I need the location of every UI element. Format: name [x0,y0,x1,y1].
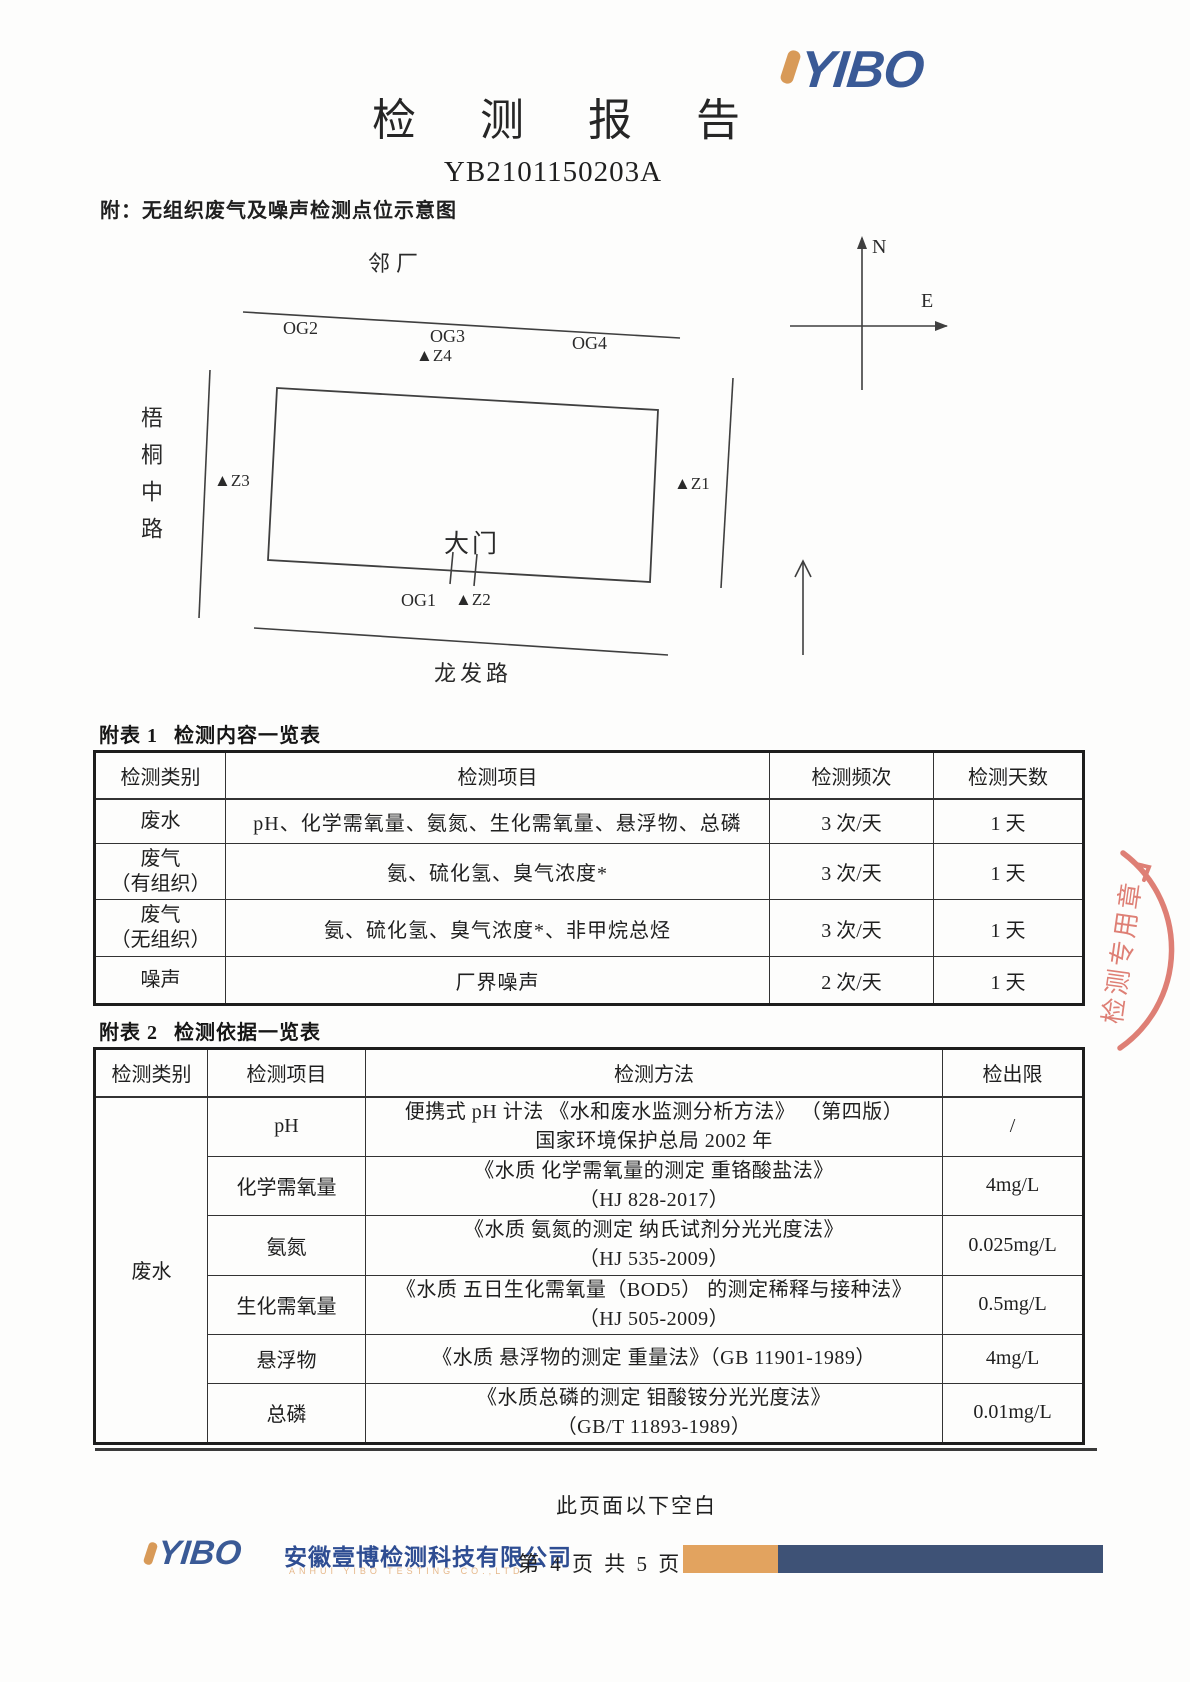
table-row: 噪声 厂界噪声 2 次/天 1 天 [95,957,1084,1005]
cell-category-merged: 废水 [95,1097,208,1444]
footer-yibo-logo: YIBO [142,1534,282,1578]
table-row: 总磷 《水质总磷的测定 钼酸铵分光光度法》（GB/T 11893-1989） 0… [95,1383,1084,1443]
compass-north-arrowhead [857,236,867,249]
cell-method: 《水质 氨氮的测定 纳氏试剂分光光度法》（HJ 535-2009） [366,1215,943,1275]
table-row: 废水 pH 便携式 pH 计法 《水和废水监测分析方法》 （第四版）国家环境保护… [95,1097,1084,1157]
gate-label: 大门 [444,524,500,560]
method-line: 《水质总磷的测定 钼酸铵分光光度法》 [370,1384,938,1413]
cell-limit: 4mg/L [943,1156,1084,1215]
road-left-label: 梧桐中路 [134,406,166,554]
table-row: 生化需氧量 《水质 五日生化需氧量（BOD5） 的测定稀释与接种法》（HJ 50… [95,1275,1084,1334]
cell-items: 氨、硫化氢、臭气浓度*、非甲烷总烃 [226,900,770,957]
test-basis-table: 检测类别 检测项目 检测方法 检出限 废水 pH 便携式 pH 计法 《水和废水… [93,1047,1085,1445]
method-line: 国家环境保护总局 2002 年 [370,1127,938,1156]
red-seal-stamp: 检测专用章 [1000,820,1190,1080]
method-line: 便携式 pH 计法 《水和废水监测分析方法》 （第四版） [370,1098,938,1127]
cell-item: 总磷 [208,1383,366,1443]
cell-method: 《水质 化学需氧量的测定 重铬酸盐法》（HJ 828-2017） [366,1156,943,1215]
column-header-category: 检测类别 [95,1049,208,1097]
table1-caption: 附表 1检测内容一览表 [99,719,321,748]
road-bottom-label: 龙发路 [434,656,512,688]
cell-limit: / [943,1097,1084,1157]
table-header-row: 检测类别 检测项目 检测频次 检测天数 [95,752,1084,799]
footer-bar-orange [683,1545,778,1573]
category-line: （无组织） [100,928,221,953]
neighbor-factory-label: 邻厂 [368,246,424,278]
cell-category: 噪声 [95,957,226,1005]
logo-accent-stroke-icon [143,1541,159,1566]
column-header-item: 检测项目 [208,1049,366,1097]
road-line-left [199,370,210,618]
cell-category: 废水 [95,799,226,844]
company-name-en: ANHUI YIBO TESTING CO.,LTD [289,1566,524,1576]
gas-point-og1: OG1 [401,590,436,611]
site-diagram [0,215,1190,685]
footer-separator-line [95,1448,1097,1451]
cell-frequency: 2 次/天 [770,957,934,1005]
cell-item: 生化需氧量 [208,1275,366,1334]
cell-limit: 4mg/L [943,1334,1084,1383]
yibo-logo: YIBO [778,40,978,114]
blank-below-note: 此页面以下空白 [556,1490,717,1520]
noise-point-z3: ▲Z3 [214,471,250,491]
table-row: 化学需氧量 《水质 化学需氧量的测定 重铬酸盐法》（HJ 828-2017） 4… [95,1156,1084,1215]
method-line: 《水质 化学需氧量的测定 重铬酸盐法》 [370,1157,938,1186]
table2-caption-label: 附表 2 [99,1022,158,1044]
cell-item: 悬浮物 [208,1334,366,1383]
cell-item: 化学需氧量 [208,1156,366,1215]
cell-limit: 0.025mg/L [943,1215,1084,1275]
cell-items: 厂界噪声 [226,957,770,1005]
gas-point-og3: OG3 [430,326,465,347]
noise-point-z2: ▲Z2 [455,590,491,610]
page-title: 检测报告 [372,84,804,148]
gas-point-og2: OG2 [283,318,318,339]
noise-point-z4: ▲Z4 [416,346,452,366]
cell-frequency: 3 次/天 [770,844,934,900]
cell-frequency: 3 次/天 [770,799,934,844]
method-line: （HJ 828-2017） [370,1186,938,1215]
logo-text: YIBO [797,40,926,100]
category-line: （有组织） [100,872,221,897]
table-row: 废气（有组织） 氨、硫化氢、臭气浓度* 3 次/天 1 天 [95,844,1084,900]
category-line: 废气 [100,847,221,872]
table2-caption-text: 检测依据一览表 [174,1022,321,1044]
method-line: 《水质 五日生化需氧量（BOD5） 的测定稀释与接种法》 [370,1276,938,1305]
table-row: 废气（无组织） 氨、硫化氢、臭气浓度*、非甲烷总烃 3 次/天 1 天 [95,900,1084,957]
category-line: 废水 [100,809,221,834]
test-content-table: 检测类别 检测项目 检测频次 检测天数 废水 pH、化学需氧量、氨氮、生化需氧量… [93,750,1085,1006]
compass-east-label: E [921,290,933,313]
noise-point-z1: ▲Z1 [674,474,710,494]
table-row: 废水 pH、化学需氧量、氨氮、生化需氧量、悬浮物、总磷 3 次/天 1 天 [95,799,1084,844]
column-header-category: 检测类别 [95,752,226,799]
cell-items: pH、化学需氧量、氨氮、生化需氧量、悬浮物、总磷 [226,799,770,844]
column-header-frequency: 检测频次 [770,752,934,799]
column-header-method: 检测方法 [366,1049,943,1097]
cell-method: 《水质总磷的测定 钼酸铵分光光度法》（GB/T 11893-1989） [366,1383,943,1443]
cell-method: 便携式 pH 计法 《水和废水监测分析方法》 （第四版）国家环境保护总局 200… [366,1097,943,1157]
cell-item: 氨氮 [208,1215,366,1275]
report-number: YB2101150203A [0,156,1106,189]
report-page: YIBO 检测报告 YB2101150203A 附：无组织废气及噪声检测点位示意… [0,0,1190,1682]
road-line-right [721,378,733,588]
table-row: 氨氮 《水质 氨氮的测定 纳氏试剂分光光度法》（HJ 535-2009） 0.0… [95,1215,1084,1275]
cell-limit: 0.5mg/L [943,1275,1084,1334]
cell-category: 废气（无组织） [95,900,226,957]
gas-point-og4: OG4 [572,333,607,354]
cell-item: pH [208,1097,366,1157]
table-row: 悬浮物 《水质 悬浮物的测定 重量法》（GB 11901-1989） 4mg/L [95,1334,1084,1383]
category-line: 噪声 [100,968,221,993]
table2-caption: 附表 2检测依据一览表 [99,1016,321,1045]
cell-items: 氨、硫化氢、臭气浓度* [226,844,770,900]
road-line-bottom [254,628,668,655]
logo-text: YIBO [156,1534,243,1573]
cell-limit: 0.01mg/L [943,1383,1084,1443]
stamp-text: 检测专用章 [1098,878,1147,1026]
page-indicator: 第 4 页 共 5 页 [518,1548,682,1578]
method-line: 《水质 悬浮物的测定 重量法》（GB 11901-1989） [370,1344,938,1373]
method-line: （GB/T 11893-1989） [370,1413,938,1442]
table1-caption-text: 检测内容一览表 [174,725,321,747]
compass-north-label: N [872,236,886,259]
method-line: （HJ 535-2009） [370,1245,938,1274]
footer-bar-blue [778,1545,1103,1573]
cell-frequency: 3 次/天 [770,900,934,957]
table1-caption-label: 附表 1 [99,725,158,747]
column-header-items: 检测项目 [226,752,770,799]
method-line: 《水质 氨氮的测定 纳氏试剂分光光度法》 [370,1216,938,1245]
cell-method: 《水质 悬浮物的测定 重量法》（GB 11901-1989） [366,1334,943,1383]
method-line: （HJ 505-2009） [370,1305,938,1334]
cell-method: 《水质 五日生化需氧量（BOD5） 的测定稀释与接种法》（HJ 505-2009… [366,1275,943,1334]
column-header-days: 检测天数 [934,752,1084,799]
table-header-row: 检测类别 检测项目 检测方法 检出限 [95,1049,1084,1097]
category-line: 废气 [100,903,221,928]
cell-category: 废气（有组织） [95,844,226,900]
compass-east-arrowhead [935,321,948,331]
